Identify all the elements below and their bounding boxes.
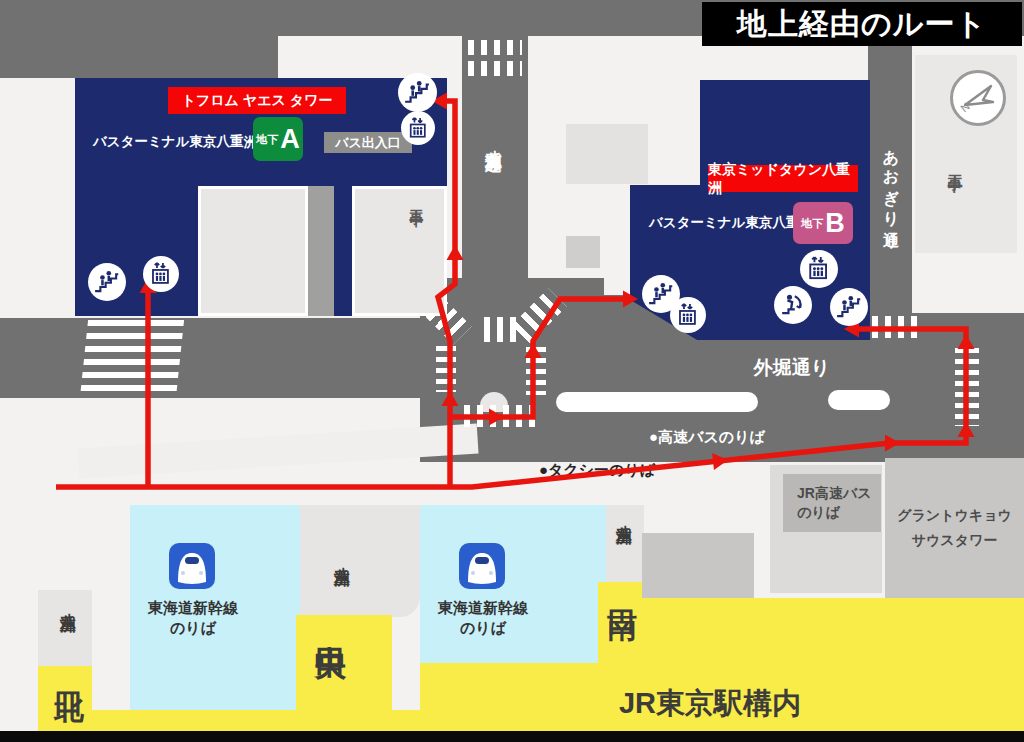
compass-icon: N: [950, 70, 1006, 126]
elevator-icon: [401, 111, 435, 145]
construction-label-east: 工事中: [942, 162, 964, 252]
crosswalk: [955, 348, 979, 426]
shinkansen-label-west: 東海道新幹線 のりば: [128, 598, 258, 642]
elevator-icon: [670, 297, 706, 333]
stairs: [80, 320, 184, 398]
crosswalk: [464, 405, 540, 427]
street-label-aogiri-dori: あおぎり通り: [875, 138, 901, 258]
midtown-label: 東京ミッドタウン八重洲: [708, 165, 858, 192]
construction-label-west: 工事中: [404, 198, 426, 278]
crosswalk: [468, 61, 522, 76]
bottom-border: [0, 731, 1024, 742]
road-top-left-block: [0, 0, 278, 78]
gate-b-badge: 地下 B: [793, 202, 853, 244]
shinkansen-icon: [168, 542, 216, 590]
taxi-stop-label: ●タクシーのりば: [527, 459, 667, 481]
street-label-yaesu-dori: 八重洲通り: [479, 136, 505, 246]
escalator-down-icon: [774, 286, 812, 324]
expressway-bus-stop-label: ●高速バスのりば: [632, 426, 782, 448]
road-sotobori-west: [0, 318, 466, 398]
road-edge-patch: [912, 295, 1024, 313]
shinkansen-label-east: 東海道新幹線 のりば: [418, 598, 548, 642]
tofrom-tower-label: トフロム ヤエス タワー: [168, 87, 346, 114]
crosswalk: [468, 40, 522, 55]
basement-label: 地下: [256, 132, 278, 147]
escalator-icon: [398, 73, 437, 112]
station-gray-central: [300, 505, 420, 617]
crosswalk: [872, 316, 918, 338]
central-gate-label: 中央口: [307, 620, 353, 732]
elevator-icon: [143, 256, 179, 292]
bus-terminal-a-label: バスターミナル東京八重洲: [90, 131, 260, 153]
page-title: 地上経由のルート: [702, 2, 1022, 46]
gate-a-badge: 地下 A: [253, 117, 303, 161]
escalator-icon: [88, 263, 126, 301]
lane-stripe: [828, 390, 890, 410]
construction-building-west: [352, 186, 447, 316]
station-premises-label: JR東京駅構内: [590, 686, 830, 722]
building-strip: [308, 186, 334, 316]
gate-a-letter: A: [280, 126, 300, 153]
yaesu-label-central: 八重洲: [328, 554, 352, 624]
crosswalk: [526, 347, 546, 395]
lane-stripe: [556, 392, 758, 412]
south-gate-label: 南口: [602, 586, 642, 656]
street-label-sotobori-dori: 外堀通り: [742, 355, 842, 381]
basement-label: 地下: [801, 216, 823, 231]
jr-expressway-bus-label: JR高速バス のりば: [797, 484, 881, 524]
light-building: [198, 186, 308, 316]
gate-b-letter: B: [825, 210, 845, 237]
light-building: [566, 236, 600, 268]
gran-tokyo-label: グラントウキョウ サウスタワー: [885, 503, 1024, 553]
crosswalk: [484, 317, 518, 342]
light-building: [566, 124, 648, 184]
bus-entrance-label: バス出入口: [324, 132, 412, 153]
escalator-icon: [830, 288, 868, 326]
route-map: 地上経由のルート トフロム ヤエス タワー バスターミナル東京八重洲 地下 A …: [0, 0, 1024, 742]
yaesu-label-south: 八重洲: [610, 512, 634, 582]
taxi-lane-edge: [77, 423, 478, 478]
yaesu-label-north: 八重洲: [54, 600, 78, 670]
shinkansen-icon: [458, 542, 506, 590]
elevator-icon: [800, 250, 838, 288]
crosswalk: [436, 346, 456, 392]
station-block: [642, 533, 754, 599]
north-gate-label: 北口: [45, 668, 89, 736]
station-yellow: [420, 663, 608, 732]
bus-terminal-b-label: バスターミナル東京八重洲: [646, 212, 816, 234]
